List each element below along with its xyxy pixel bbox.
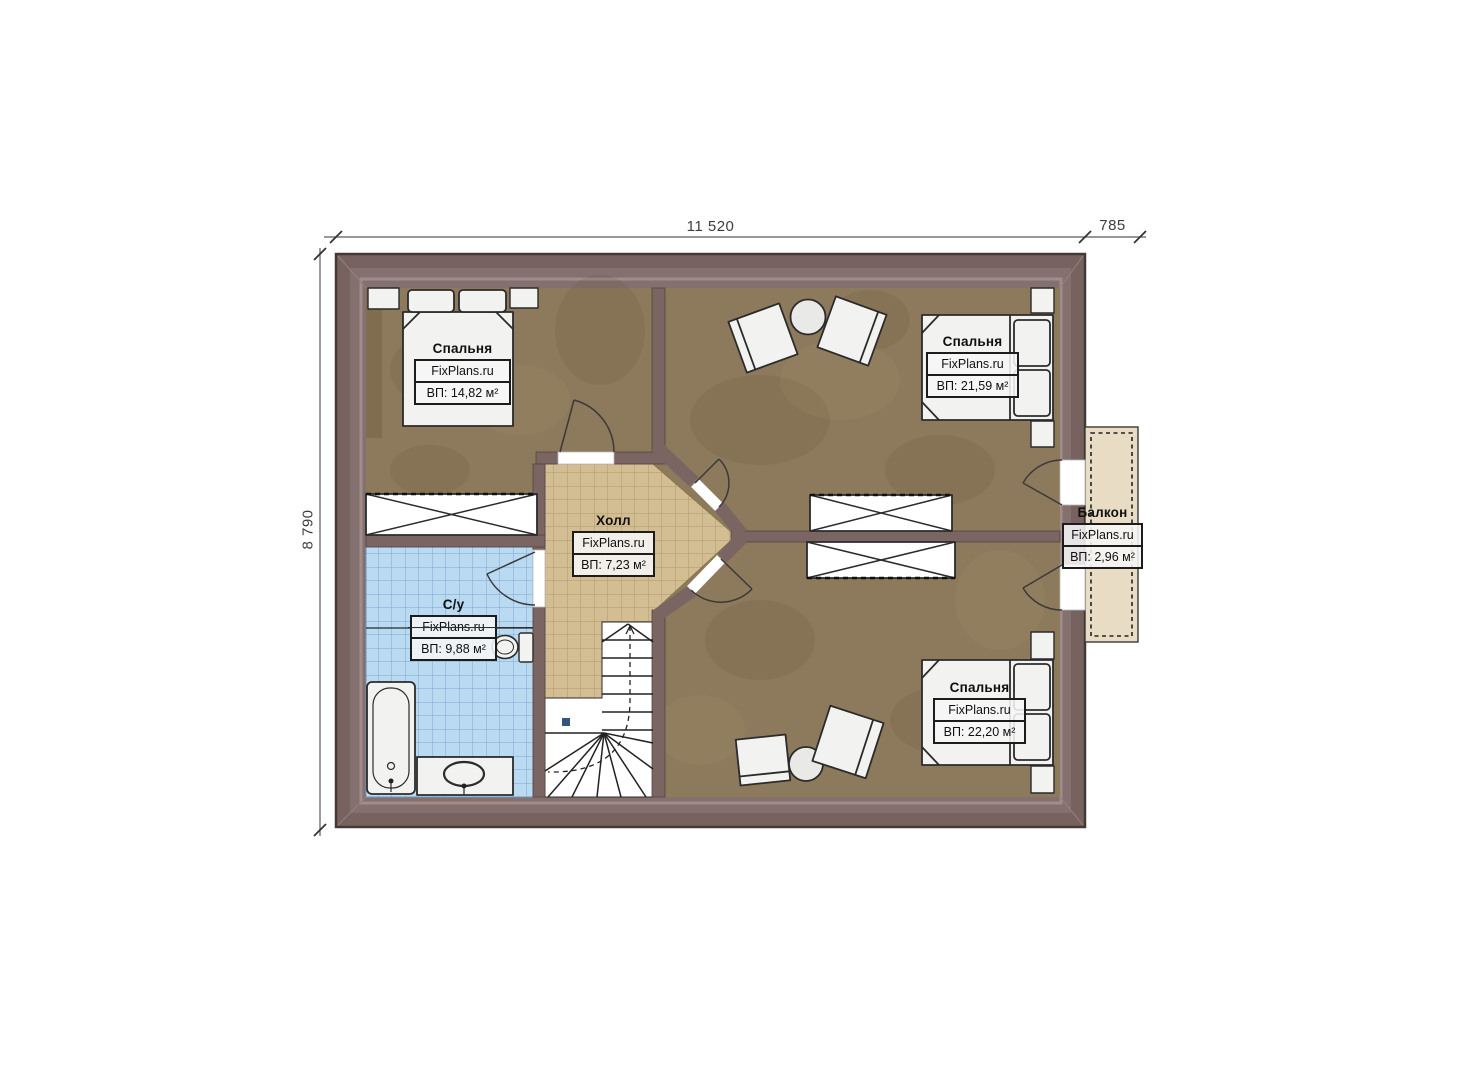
brand-watermark: FixPlans.ru xyxy=(933,698,1026,722)
brand-watermark: FixPlans.ru xyxy=(1062,523,1143,547)
brand-watermark: FixPlans.ru xyxy=(572,531,655,555)
bathtub xyxy=(367,682,415,794)
room-name: Спальня xyxy=(926,334,1019,349)
round-table xyxy=(791,300,826,335)
wardrobe-top-left xyxy=(366,494,537,535)
chair xyxy=(736,735,791,786)
stair-post-marker xyxy=(562,718,570,726)
pillow xyxy=(1014,320,1050,366)
room-name: Спальня xyxy=(933,680,1026,695)
room-label-hall: Холл FixPlans.ru ВП: 7,23 м² xyxy=(572,513,655,577)
dimension-left-height: 8 790 xyxy=(300,500,317,560)
room-area: ВП: 2,96 м² xyxy=(1062,545,1143,569)
room-area: ВП: 22,20 м² xyxy=(933,720,1026,744)
room-label-bedroom-bottom-right: Спальня FixPlans.ru ВП: 22,20 м² xyxy=(933,680,1026,744)
pillow xyxy=(459,290,506,312)
room-area: ВП: 7,23 м² xyxy=(572,553,655,577)
nightstand xyxy=(510,288,538,308)
room-name: Балкон xyxy=(1062,505,1143,520)
floor-plan-page: 11 520 785 8 790 Спальня FixPlans.ru ВП:… xyxy=(0,0,1473,1080)
sink-vanity xyxy=(417,757,513,795)
room-label-bathroom: С/у FixPlans.ru ВП: 9,88 м² xyxy=(410,597,497,661)
room-area: ВП: 9,88 м² xyxy=(410,637,497,661)
room-area: ВП: 14,82 м² xyxy=(414,381,511,405)
room-name: С/у xyxy=(410,597,497,612)
wardrobe-bottom-right xyxy=(807,542,955,578)
brand-watermark: FixPlans.ru xyxy=(926,352,1019,376)
nightstand xyxy=(1031,632,1054,659)
room-label-bedroom-top-left: Спальня FixPlans.ru ВП: 14,82 м² xyxy=(414,341,511,405)
room-name: Холл xyxy=(572,513,655,528)
brand-watermark: FixPlans.ru xyxy=(414,359,511,383)
wardrobe-top-right xyxy=(810,495,952,531)
room-label-balcony: Балкон FixPlans.ru ВП: 2,96 м² xyxy=(1062,505,1143,569)
floor-plan-drawing xyxy=(0,0,1473,1080)
room-label-bedroom-top-right: Спальня FixPlans.ru ВП: 21,59 м² xyxy=(926,334,1019,398)
pillow xyxy=(1014,370,1050,416)
pillow xyxy=(408,290,454,312)
room-name: Спальня xyxy=(414,341,511,356)
bathroom-strike-line xyxy=(408,627,533,628)
room-area: ВП: 21,59 м² xyxy=(926,374,1019,398)
nightstand xyxy=(368,288,399,309)
nightstand xyxy=(1031,288,1054,313)
nightstand xyxy=(1031,766,1054,793)
dimension-top-width: 11 520 xyxy=(336,218,1085,235)
dimension-balcony-width: 785 xyxy=(1085,217,1140,234)
nightstand xyxy=(1031,421,1054,447)
